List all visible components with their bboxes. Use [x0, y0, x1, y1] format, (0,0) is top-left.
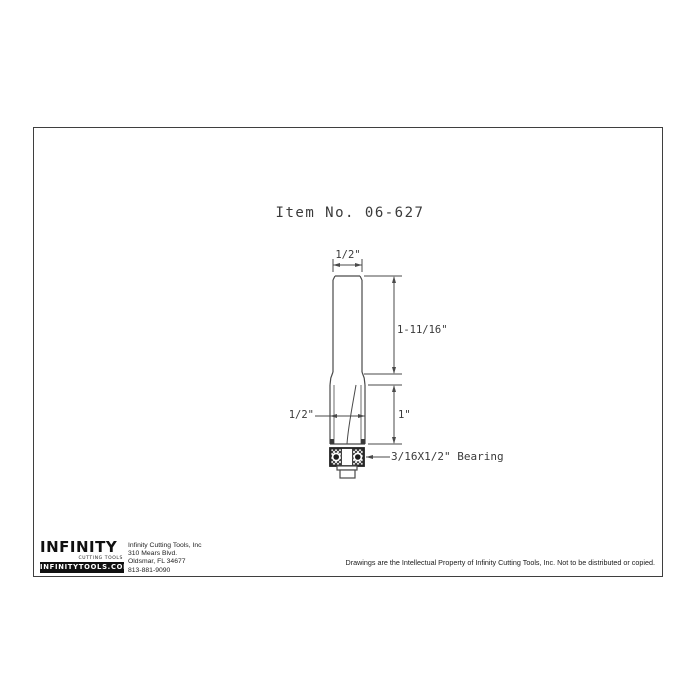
router-bit-diagram	[0, 0, 700, 700]
bearing-size-label: 3/16X1/2" Bearing	[391, 450, 504, 463]
bit-shank	[330, 276, 365, 385]
bit-screw	[337, 466, 357, 478]
dimension-arrowheads	[330, 263, 396, 459]
logo-website-badge: INFINITYTOOLS.COM	[40, 562, 124, 573]
logo-tagline: CUTTING TOOLS	[40, 556, 123, 561]
infinity-logo: INFINITY	[40, 540, 124, 555]
dim-shank-length-label: 1-11/16"	[397, 324, 448, 336]
company-address: Infinity Cutting Tools, Inc 310 Mears Bl…	[128, 542, 202, 575]
address-line-street: 310 Mears Blvd.	[128, 550, 202, 558]
carbide-tip-right	[361, 439, 365, 444]
copyright-notice: Drawings are the Intellectual Property o…	[346, 558, 656, 567]
address-line-city: Oldsmar, FL 34677	[128, 558, 202, 566]
dim-cutter-length-label: 1"	[398, 409, 411, 421]
bit-bearing	[330, 448, 364, 466]
address-line-company: Infinity Cutting Tools, Inc	[128, 542, 202, 550]
carbide-tip-left	[330, 439, 334, 444]
address-line-phone: 813-881-9090	[128, 567, 202, 575]
dim-cutter-diameter-label: 1/2"	[284, 409, 314, 421]
dimension-lines	[315, 259, 402, 457]
dim-shank-diameter-label: 1/2"	[330, 249, 366, 261]
drawing-page: Item No. 06-627	[0, 0, 700, 700]
